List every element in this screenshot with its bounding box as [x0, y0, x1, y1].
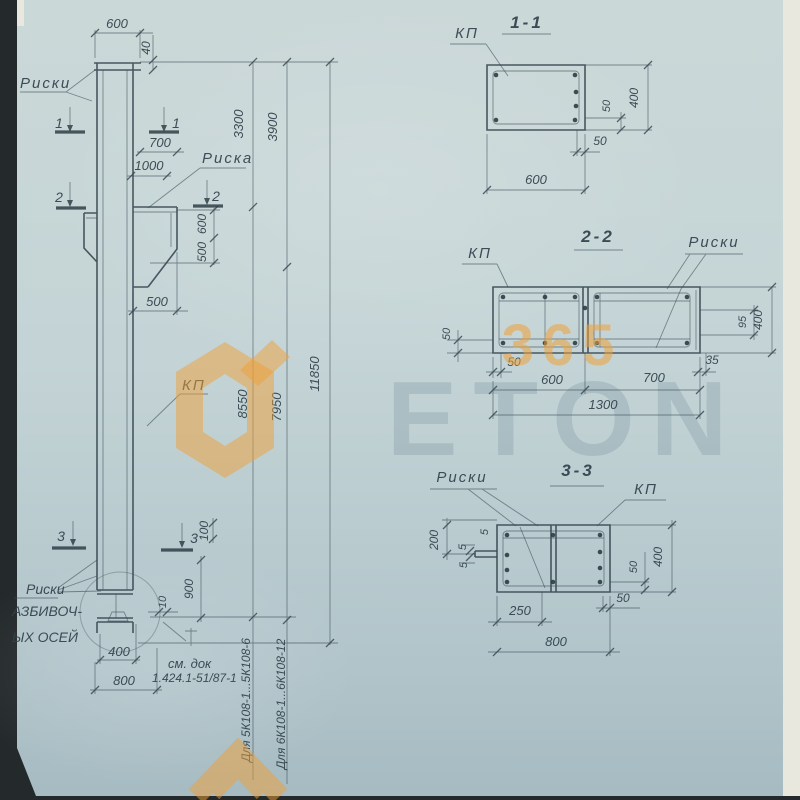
dim-11850: 11850 — [307, 356, 322, 392]
dim-10: 10 — [157, 595, 169, 608]
s2-label-riski: Риски — [688, 234, 739, 251]
dim-500-horiz: 500 — [146, 294, 168, 309]
s1-dim-400: 400 — [627, 88, 641, 108]
s3-dim-50-right: 50 — [628, 560, 640, 573]
section-mark-1-left: 1 — [55, 115, 63, 131]
s1-dim-50-vert: 50 — [601, 99, 613, 112]
dim-700: 700 — [149, 135, 171, 150]
s2-label-kp: КП — [468, 245, 492, 262]
dim-600-top: 600 — [106, 16, 128, 31]
blueprint-canvas: ETON Риски 600 40 1 1 700 1000 Риска 2 2… — [0, 0, 800, 800]
s3-title: 3-3 — [561, 461, 595, 480]
label-see-doc: см. док — [168, 656, 212, 671]
s2-dim-1300: 1300 — [589, 397, 619, 412]
s3-dim-5b: 5 — [457, 543, 469, 550]
dim-900: 900 — [182, 579, 196, 599]
dim-3300: 3300 — [231, 109, 246, 139]
s3-dim-50-bottom: 50 — [616, 591, 630, 605]
section-mark-2-right: 2 — [211, 188, 220, 204]
s3-dim-800: 800 — [545, 634, 567, 649]
s3-label-kp: КП — [634, 481, 658, 498]
s2-dim-95: 95 — [737, 315, 749, 328]
dim-800-bottom: 800 — [113, 673, 135, 688]
label-riska: Риска — [202, 150, 253, 167]
paper-right-margin — [783, 0, 800, 796]
s3-dim-5c: 5 — [458, 561, 470, 568]
s1-title: 1-1 — [510, 13, 544, 32]
dim-3900: 3900 — [265, 112, 280, 142]
label-riski-bottom: Риски — [26, 581, 65, 597]
label-doc-number: 1.424.1-51/87-1 — [152, 671, 237, 685]
section-mark-3-left: 3 — [57, 528, 65, 544]
s3-dim-200: 200 — [427, 530, 441, 551]
s1-label-kp: КП — [455, 25, 479, 42]
s1-dim-600: 600 — [525, 172, 547, 187]
blueprint-photo: ETON Риски 600 40 1 1 700 1000 Риска 2 2… — [0, 0, 800, 800]
dim-600-vert: 600 — [195, 214, 209, 234]
dim-100: 100 — [197, 521, 211, 541]
s2-title: 2-2 — [580, 227, 615, 246]
s1-dim-50-horiz: 50 — [593, 134, 607, 148]
label-axes-line2: ЫХ ОСЕЙ — [12, 628, 79, 645]
label-for-6k108: Для 6К108-1...6К108-12 — [274, 638, 288, 771]
s3-label-riski: Риски — [436, 469, 487, 486]
dim-500-vert: 500 — [195, 242, 209, 262]
s2-dim-35: 35 — [705, 353, 719, 367]
s3-dim-250: 250 — [508, 603, 531, 618]
s2-dim-400: 400 — [751, 310, 765, 330]
dim-400-bottom: 400 — [108, 644, 130, 659]
s3-dim-5a: 5 — [479, 528, 491, 535]
watermark-365-text: 365 — [502, 313, 623, 378]
section-mark-1-right: 1 — [172, 115, 180, 131]
s2-dim-700: 700 — [643, 370, 665, 385]
dim-1000: 1000 — [135, 158, 165, 173]
s3-dim-400: 400 — [651, 547, 665, 567]
label-axes-line1: АЗБИВОЧ- — [11, 603, 82, 619]
label-riski-top: Риски — [20, 75, 71, 92]
s2-dim-50-left: 50 — [441, 327, 453, 340]
paper-edge-sliver — [17, 0, 24, 26]
section-mark-2-left: 2 — [54, 189, 63, 205]
dim-40: 40 — [139, 41, 153, 55]
